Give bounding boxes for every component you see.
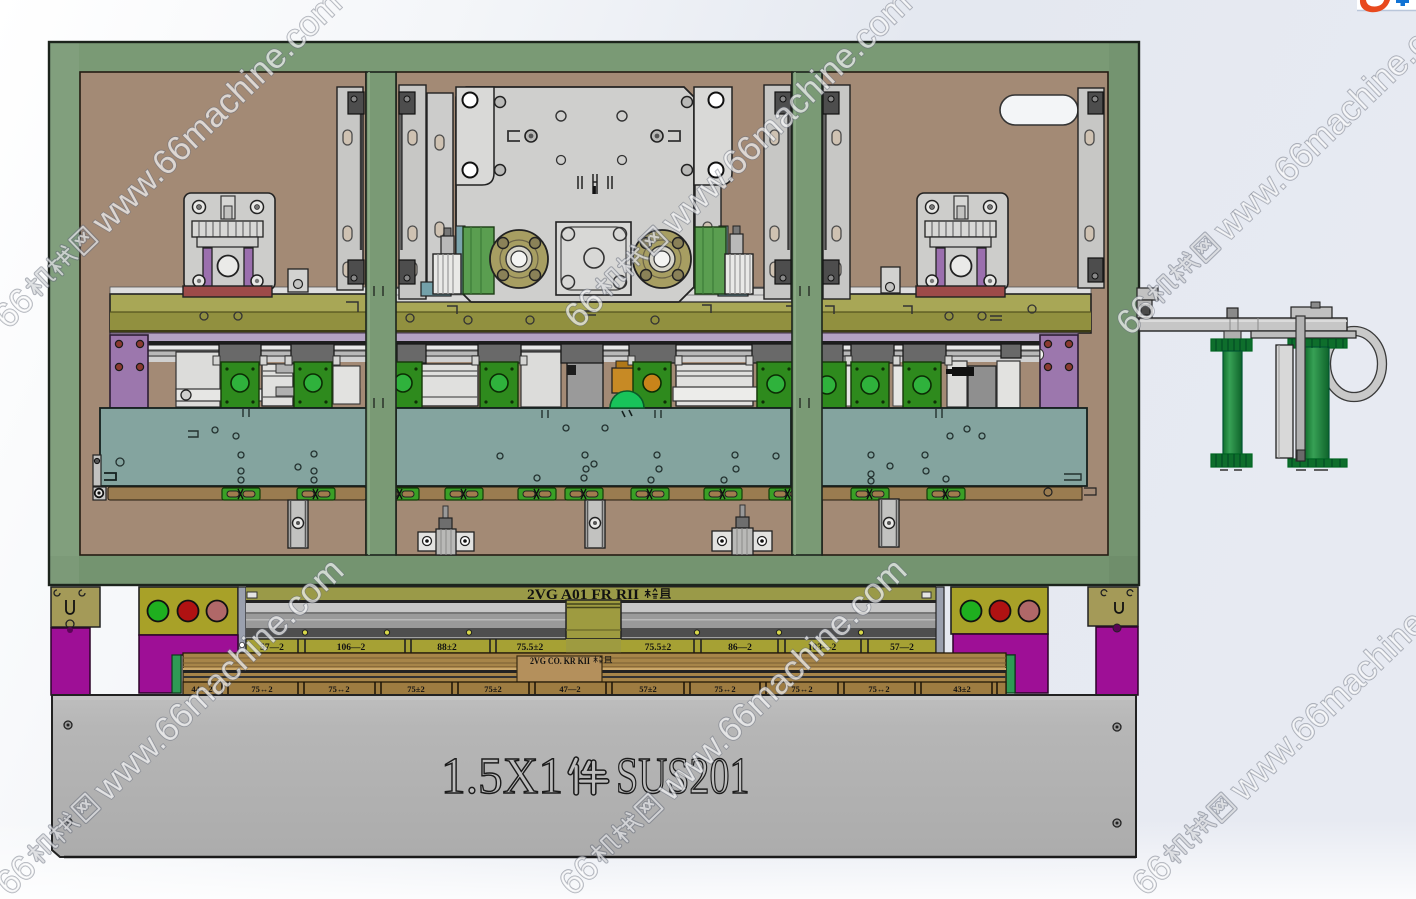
svg-text:2VG CO. KR KII: 2VG CO. KR KII — [530, 656, 590, 666]
svg-text:75↔2: 75↔2 — [251, 684, 272, 694]
svg-text:86—2: 86—2 — [728, 643, 752, 653]
svg-text:75±2: 75±2 — [407, 684, 424, 694]
svg-text:75±2: 75±2 — [484, 684, 501, 694]
svg-text:1.5X1: 1.5X1 — [441, 747, 563, 804]
svg-text:47—2: 47—2 — [559, 684, 580, 694]
svg-text:75.5±2: 75.5±2 — [645, 643, 672, 653]
svg-text:75↔2: 75↔2 — [868, 684, 889, 694]
svg-text:57±2: 57±2 — [639, 684, 656, 694]
svg-text:75↔2: 75↔2 — [714, 684, 735, 694]
svg-text:75.5±2: 75.5±2 — [517, 643, 544, 653]
svg-text:57—2: 57—2 — [890, 643, 914, 653]
svg-text:75↔2: 75↔2 — [328, 684, 349, 694]
svg-text:88±2: 88±2 — [437, 643, 457, 653]
svg-text:43±2: 43±2 — [953, 684, 970, 694]
svg-text:106—2: 106—2 — [337, 643, 366, 653]
